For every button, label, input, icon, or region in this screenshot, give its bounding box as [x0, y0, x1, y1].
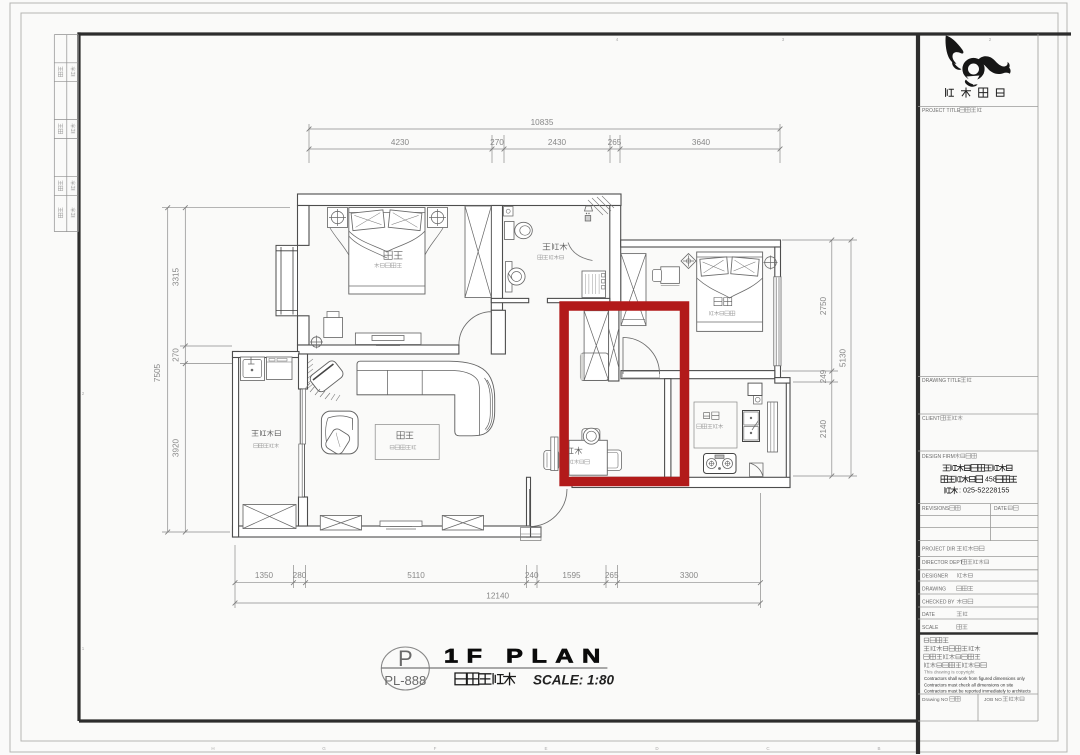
- svg-text:H: H: [211, 746, 214, 751]
- svg-text:CLIENT: CLIENT: [922, 416, 940, 422]
- svg-text:B: B: [877, 746, 880, 751]
- svg-text:280: 280: [293, 571, 307, 580]
- svg-text:3920: 3920: [172, 438, 181, 457]
- svg-text:3300: 3300: [680, 571, 699, 580]
- svg-text:DIRECTOR DEPT: DIRECTOR DEPT: [922, 560, 963, 566]
- svg-text:: 025-52228155: : 025-52228155: [959, 486, 1009, 495]
- svg-text:Contractors must check all dim: Contractors must check all dimensions on…: [924, 682, 1014, 687]
- svg-text:5110: 5110: [407, 571, 425, 580]
- svg-text:F: F: [434, 746, 437, 751]
- svg-text:E: E: [544, 746, 547, 751]
- svg-text:P: P: [398, 646, 413, 671]
- svg-text:G: G: [322, 746, 326, 751]
- svg-text:PROJECT TITLE: PROJECT TITLE: [922, 108, 961, 114]
- svg-text:3640: 3640: [692, 138, 711, 147]
- svg-text:4230: 4230: [391, 138, 410, 147]
- svg-text:2430: 2430: [548, 138, 567, 147]
- svg-text:265: 265: [605, 571, 619, 580]
- svg-text:Contractors must be reported i: Contractors must be reported immediately…: [924, 689, 1031, 694]
- svg-text:2750: 2750: [819, 296, 828, 315]
- svg-text:270: 270: [172, 348, 181, 362]
- svg-text:DESIGNER: DESIGNER: [922, 574, 949, 580]
- svg-text:240: 240: [525, 571, 539, 580]
- svg-text:DATE: DATE: [994, 506, 1008, 512]
- svg-text:CHECKED BY: CHECKED BY: [922, 600, 955, 606]
- svg-text:DATE: DATE: [922, 612, 936, 618]
- svg-text:PROJECT DIR: PROJECT DIR: [922, 547, 956, 553]
- svg-text:2140: 2140: [819, 419, 828, 438]
- svg-text:DRAWING TITLE: DRAWING TITLE: [922, 378, 962, 384]
- svg-text:10835: 10835: [531, 118, 554, 127]
- svg-text:JOB NO: JOB NO: [984, 697, 1002, 703]
- svg-text:DESIGN FIRM: DESIGN FIRM: [922, 454, 955, 460]
- svg-text:458: 458: [985, 477, 997, 484]
- svg-text:Contractors shall work from fi: Contractors shall work from figured dime…: [924, 676, 1026, 681]
- svg-text:1350: 1350: [255, 571, 274, 580]
- svg-text:Drawing NO: Drawing NO: [922, 697, 948, 703]
- svg-text:270: 270: [490, 138, 504, 147]
- svg-text:This drawing is copyright: This drawing is copyright: [924, 670, 975, 675]
- svg-text:265: 265: [608, 138, 622, 147]
- svg-text:1F PLAN: 1F PLAN: [444, 645, 609, 667]
- svg-text:1595: 1595: [562, 571, 581, 580]
- svg-text:5130: 5130: [839, 348, 848, 367]
- svg-text:REVISIONS: REVISIONS: [922, 506, 950, 512]
- svg-text:SCALE: SCALE: [922, 625, 939, 631]
- svg-text:SCALE: 1:80: SCALE: 1:80: [533, 673, 615, 688]
- svg-text:12140: 12140: [486, 592, 509, 601]
- svg-text:7505: 7505: [153, 363, 162, 382]
- svg-text:DRAWING: DRAWING: [922, 587, 946, 593]
- svg-text:3315: 3315: [172, 267, 181, 286]
- svg-text:249: 249: [819, 369, 828, 383]
- svg-text:PL-888: PL-888: [384, 673, 426, 688]
